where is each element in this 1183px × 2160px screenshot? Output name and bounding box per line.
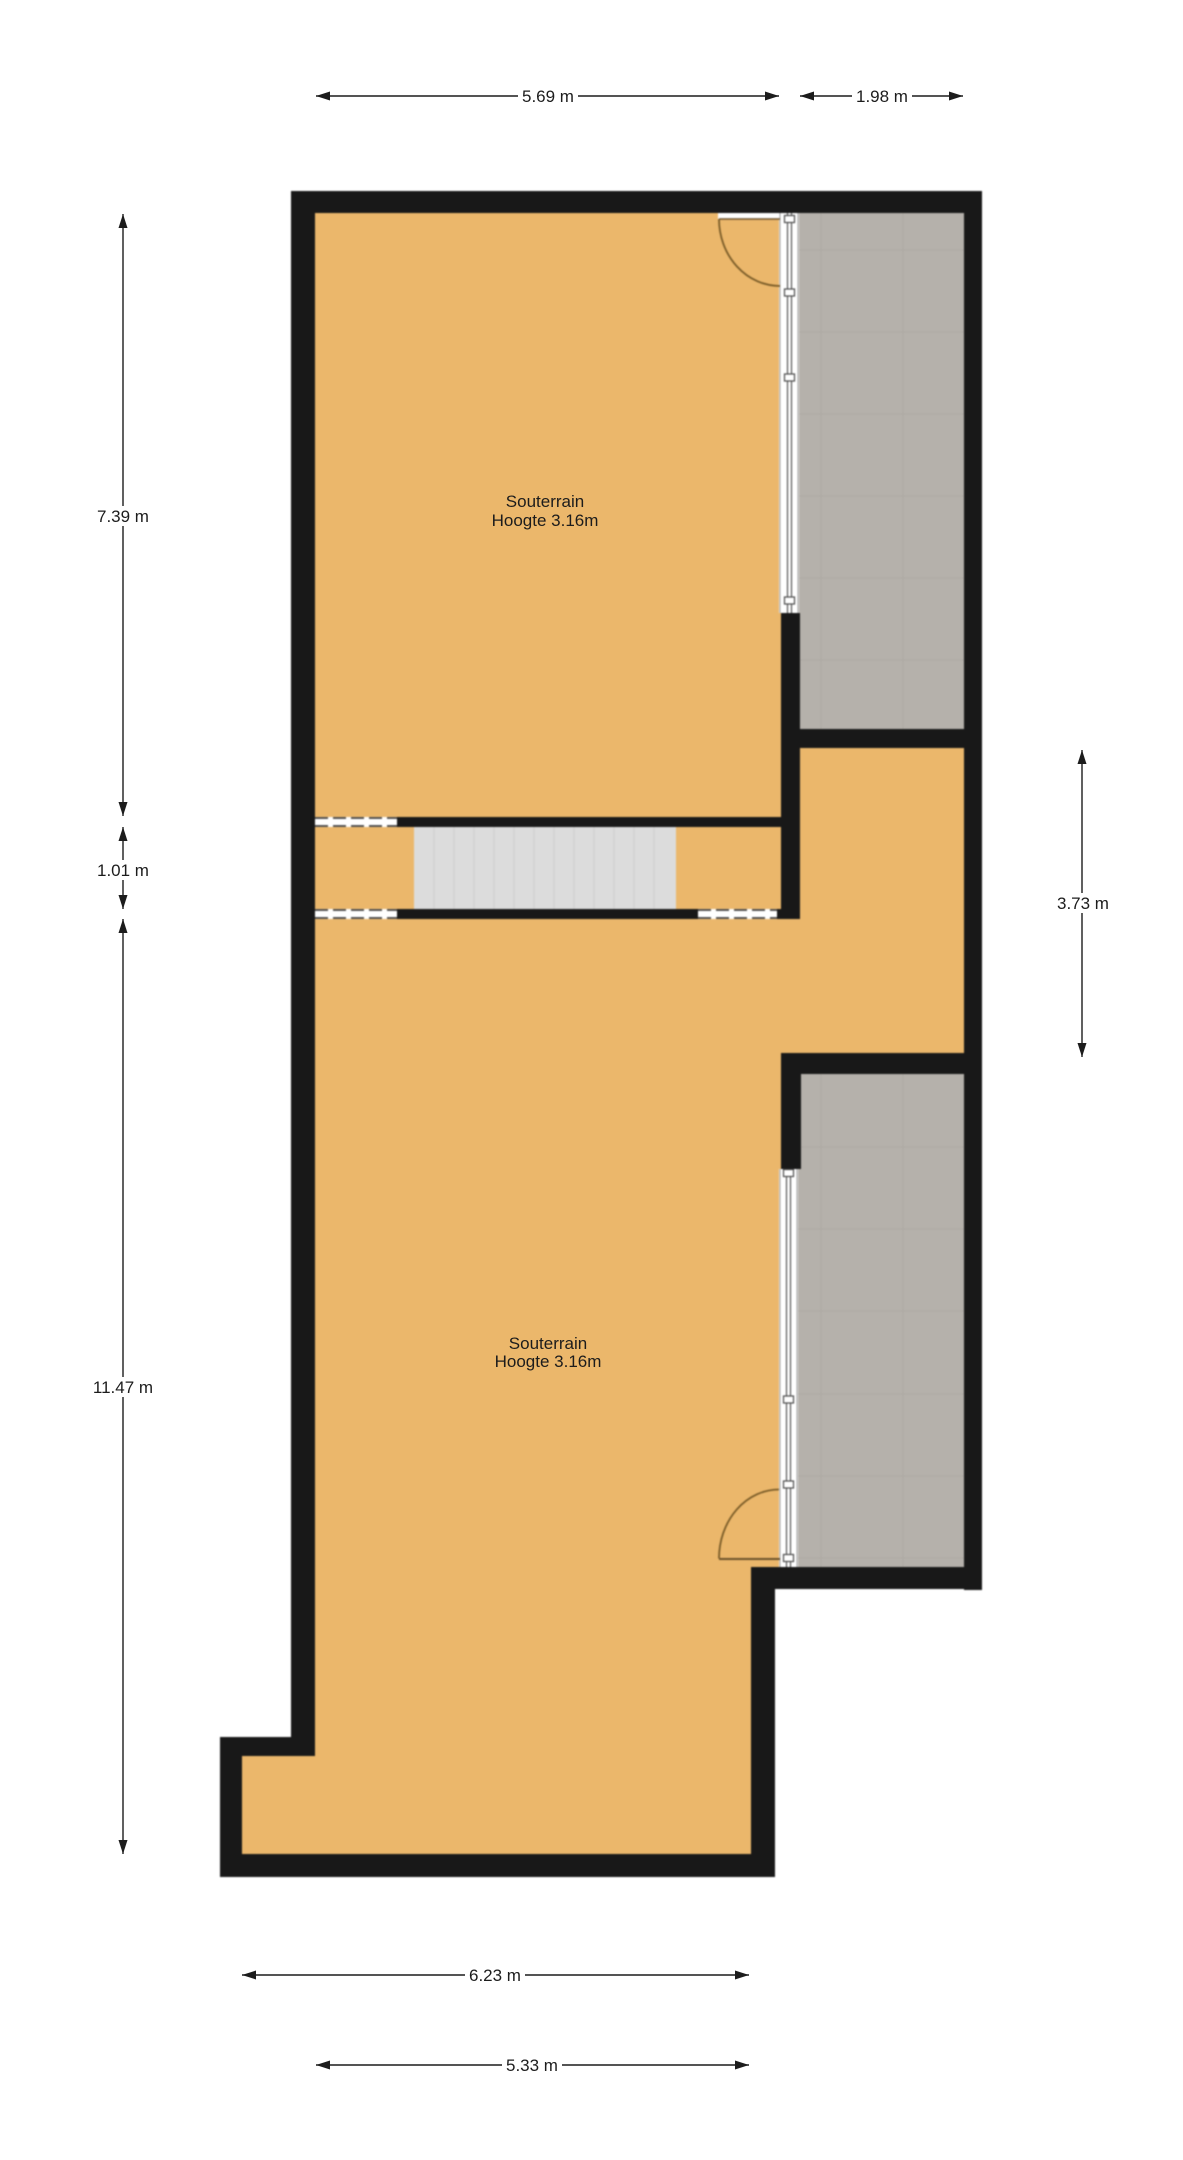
svg-text:Souterrain: Souterrain <box>509 1334 587 1353</box>
svg-text:5.69 m: 5.69 m <box>522 87 574 106</box>
svg-text:7.39 m: 7.39 m <box>97 507 149 526</box>
svg-text:Hoogte 3.16m: Hoogte 3.16m <box>495 1352 602 1371</box>
svg-text:1.98 m: 1.98 m <box>856 87 908 106</box>
svg-text:6.23 m: 6.23 m <box>469 1966 521 1985</box>
svg-text:11.47 m: 11.47 m <box>93 1378 153 1397</box>
svg-text:3.73 m: 3.73 m <box>1057 894 1109 913</box>
svg-text:Souterrain: Souterrain <box>506 492 584 511</box>
svg-text:5.33 m: 5.33 m <box>506 2056 558 2075</box>
svg-text:1.01 m: 1.01 m <box>97 861 149 880</box>
svg-text:Hoogte 3.16m: Hoogte 3.16m <box>492 511 599 530</box>
